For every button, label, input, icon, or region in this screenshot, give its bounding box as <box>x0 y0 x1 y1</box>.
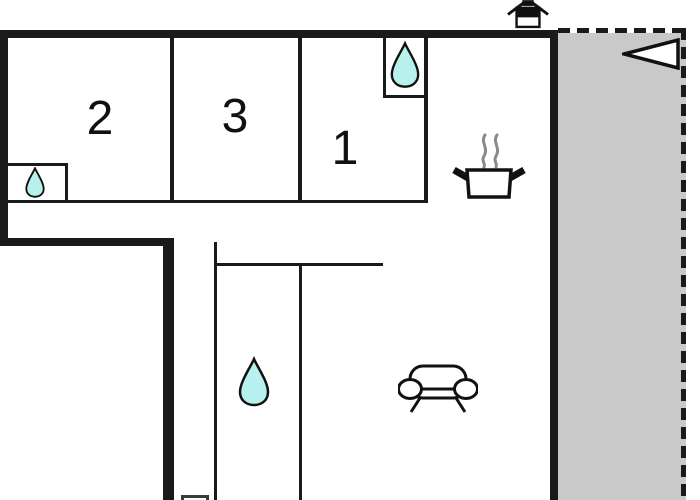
wall-room1-closet-bottom <box>383 95 428 98</box>
wall-room2-room3-divider <box>170 38 174 202</box>
wall-room3-room1-divider <box>298 38 302 202</box>
terrace-area <box>558 33 686 500</box>
wall-exterior-top <box>0 30 558 38</box>
wall-exterior-lower-left <box>163 238 174 500</box>
wall-rooms-bottom <box>8 200 428 203</box>
water-drop-icon-bathroom <box>237 356 271 408</box>
wall-room2-closet-right <box>65 163 68 203</box>
floor-plan: 2 3 1 <box>0 0 700 500</box>
wall-bathroom-left <box>214 242 217 500</box>
wall-exterior-bottom-left <box>0 238 174 246</box>
water-drop-icon-room-1-closet <box>389 40 421 90</box>
house-icon <box>507 0 549 29</box>
wall-room2-closet-top <box>4 163 68 166</box>
wall-exterior-left <box>0 30 8 246</box>
north-arrow-icon <box>622 38 680 70</box>
room-label-3: 3 <box>207 88 263 144</box>
wall-room1-right <box>424 38 428 202</box>
room-label-1: 1 <box>317 120 373 176</box>
wall-bathroom-right <box>299 263 302 500</box>
water-drop-icon-room-2-closet <box>23 167 47 198</box>
bottom-fixture <box>181 495 209 500</box>
terrace-dashed-border-right <box>681 28 686 500</box>
terrace-dashed-border-top <box>558 28 689 33</box>
room-label-2: 2 <box>72 90 128 146</box>
cooking-pot-icon <box>450 132 528 202</box>
wall-room1-closet-left <box>383 38 386 98</box>
wall-exterior-right <box>550 30 558 500</box>
sofa-icon <box>398 360 478 414</box>
